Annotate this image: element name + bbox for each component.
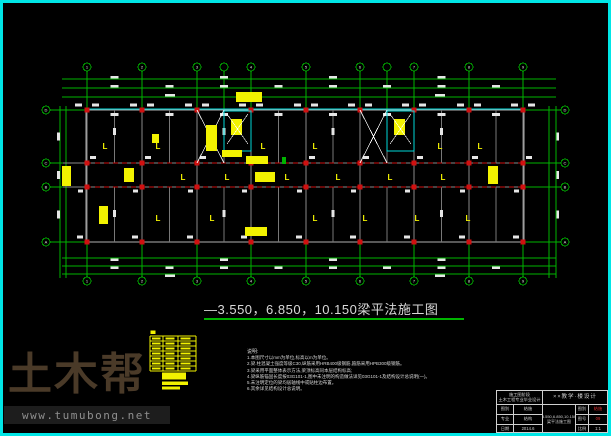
- cad-viewport: 112233445566778899DDCCBBAALLLLLLLLLLLLLL…: [0, 0, 611, 436]
- svg-text:6: 6: [359, 279, 362, 284]
- title-underline: [204, 318, 464, 320]
- tb-value: 1:1: [588, 424, 607, 434]
- tb-label: 图号: [575, 414, 588, 424]
- svg-text:L: L: [438, 142, 443, 151]
- tb-value: 结施: [513, 404, 542, 414]
- svg-text:L: L: [388, 173, 393, 182]
- svg-text:L: L: [363, 214, 368, 223]
- svg-text:9: 9: [522, 279, 525, 284]
- svg-text:5: 5: [305, 65, 308, 70]
- tb-label: 图别: [575, 404, 588, 414]
- svg-text:5: 5: [305, 279, 308, 284]
- svg-text:L: L: [156, 142, 161, 151]
- svg-text:C: C: [564, 161, 567, 166]
- svg-text:L: L: [181, 173, 186, 182]
- svg-text:L: L: [103, 142, 108, 151]
- svg-text:1: 1: [86, 279, 89, 284]
- svg-text:L: L: [128, 173, 133, 182]
- svg-text:L: L: [156, 214, 161, 223]
- svg-text:C: C: [45, 161, 48, 166]
- watermark-bar: www.tumubong.net: [4, 406, 170, 424]
- project-cell: ××教学·楼设计: [542, 391, 607, 404]
- svg-text:8: 8: [468, 65, 471, 70]
- svg-text:D: D: [564, 108, 567, 113]
- watermark-brand: 土木帮: [8, 350, 146, 400]
- tb-label: 比例: [575, 424, 588, 434]
- svg-text:6: 6: [359, 65, 362, 70]
- svg-text:L: L: [261, 142, 266, 151]
- tb-value-red: 结施: [588, 404, 607, 414]
- svg-text:L: L: [313, 142, 318, 151]
- svg-text:B: B: [45, 185, 48, 190]
- tb-value: 结构: [513, 414, 542, 424]
- svg-text:4: 4: [250, 279, 253, 284]
- svg-text:2: 2: [141, 279, 144, 284]
- notes-block: 说明: 1.本图尺寸以mm为单位,标高以m为单位。 2.梁.柱混凝土强度等级C3…: [247, 349, 407, 392]
- svg-text:L: L: [225, 173, 230, 182]
- svg-text:L: L: [441, 173, 446, 182]
- watermark-url: www.tumubong.net: [22, 409, 152, 422]
- tb-label: 图别: [497, 404, 513, 414]
- org-line2: 土木工程专业毕业设计: [499, 398, 541, 403]
- svg-text:7: 7: [413, 65, 416, 70]
- tb-value: 2014.6: [513, 424, 542, 434]
- svg-text:1: 1: [86, 65, 89, 70]
- legend-table: [150, 331, 196, 390]
- svg-text:A: A: [564, 240, 567, 245]
- svg-text:4: 4: [250, 65, 253, 70]
- svg-text:D: D: [45, 108, 48, 113]
- svg-text:3: 3: [196, 65, 199, 70]
- svg-text:B: B: [564, 185, 567, 190]
- drawing-name-cell: 3.550,6.850,10.150梁平法施工图: [542, 404, 575, 434]
- drawing-title: —3.550，6.850，10.150梁平法施工图: [204, 299, 438, 318]
- columns-and-red-lines: [85, 108, 526, 245]
- svg-text:9: 9: [522, 65, 525, 70]
- org-cell: 施工图阶段 土木工程专业毕业设计: [497, 391, 542, 404]
- note-line: 2.梁.柱混凝土强度等级C30,纵筋采用HRB400级钢筋,箍筋采用HPB300…: [247, 361, 407, 367]
- svg-text:L: L: [415, 214, 420, 223]
- svg-text:L: L: [285, 173, 290, 182]
- svg-text:L: L: [313, 214, 318, 223]
- svg-text:2: 2: [141, 65, 144, 70]
- svg-text:3: 3: [196, 279, 199, 284]
- svg-text:L: L: [466, 214, 471, 223]
- svg-text:L: L: [478, 142, 483, 151]
- svg-text:L: L: [336, 173, 341, 182]
- svg-text:8: 8: [468, 279, 471, 284]
- title-block: 施工图阶段 土木工程专业毕业设计 ××教学·楼设计 图别 结施 专业 结构 日期…: [496, 390, 608, 433]
- svg-text:L: L: [210, 214, 215, 223]
- tb-label: 专业: [497, 414, 513, 424]
- tb-label: 日期: [497, 424, 513, 434]
- note-line: 6.其余详见结构设计总说明。: [247, 386, 407, 392]
- tb-value-red: 09: [588, 414, 607, 424]
- svg-text:A: A: [45, 240, 48, 245]
- svg-text:7: 7: [413, 279, 416, 284]
